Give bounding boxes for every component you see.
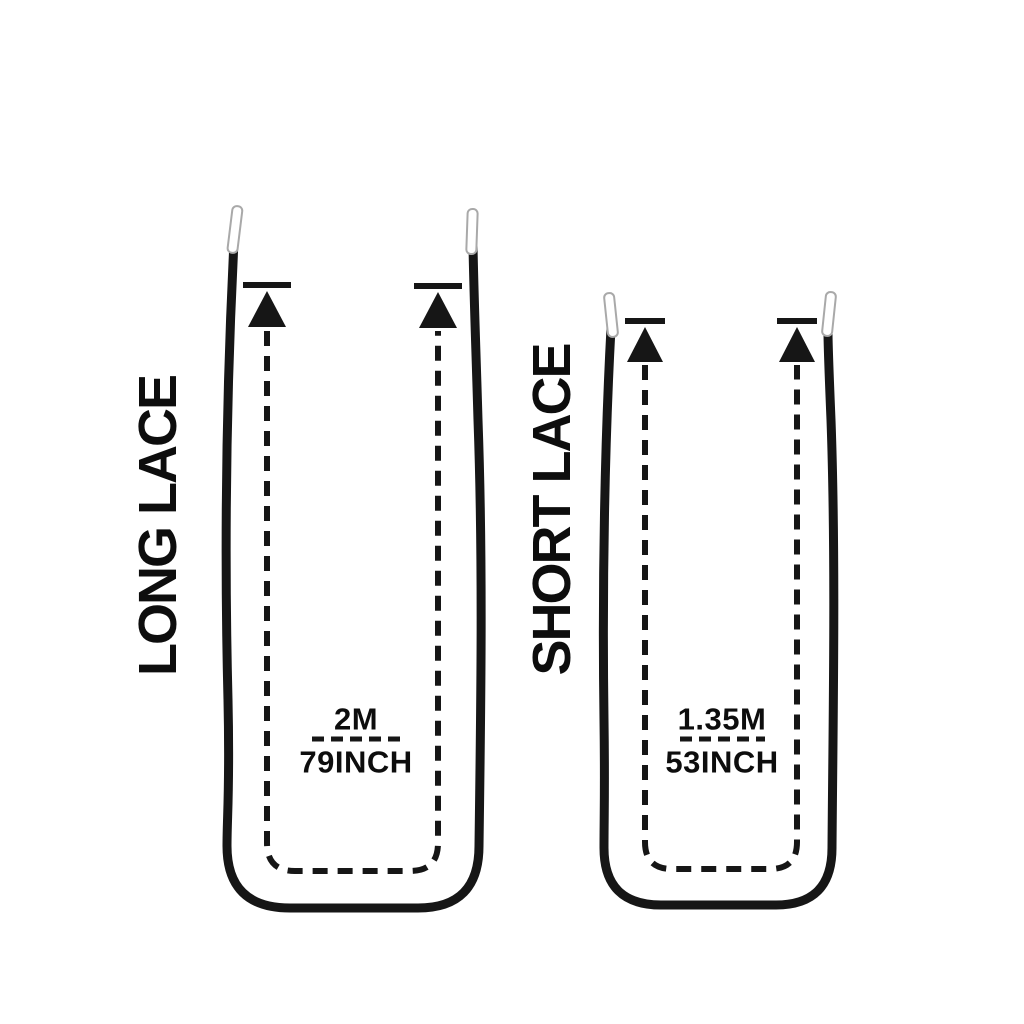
long-lace-length-inches: 79INCH [299, 745, 412, 780]
short-lace-length-meters: 1.35M [678, 702, 767, 737]
long-lace-aglet-right [466, 209, 478, 254]
short-lace-length-inches: 53INCH [665, 745, 778, 780]
long-lace-group: LONG LACE 2M 79INCH [128, 206, 481, 908]
long-lace-up-arrow-left-icon [248, 291, 286, 327]
short-lace-up-arrow-left-icon [627, 327, 663, 362]
short-lace-group: SHORT LACE 1.35M 53INCH [522, 292, 836, 905]
short-lace-up-arrow-right-icon [779, 327, 815, 362]
long-lace-aglet-left [227, 206, 243, 254]
long-lace-length-meters: 2M [334, 702, 378, 737]
short-lace-aglet-left [604, 293, 619, 338]
shoelace-comparison-diagram: LONG LACE 2M 79INCH SHORT LACE 1. [0, 0, 1024, 1024]
short-lace-measure-path [645, 365, 797, 869]
diagram-canvas: LONG LACE 2M 79INCH SHORT LACE 1. [0, 0, 1024, 1024]
short-lace-label: SHORT LACE [522, 345, 582, 676]
long-lace-measure-path [267, 331, 438, 871]
short-lace-aglet-right [822, 292, 837, 337]
long-lace-label: LONG LACE [128, 376, 188, 676]
long-lace-up-arrow-right-icon [419, 292, 457, 328]
